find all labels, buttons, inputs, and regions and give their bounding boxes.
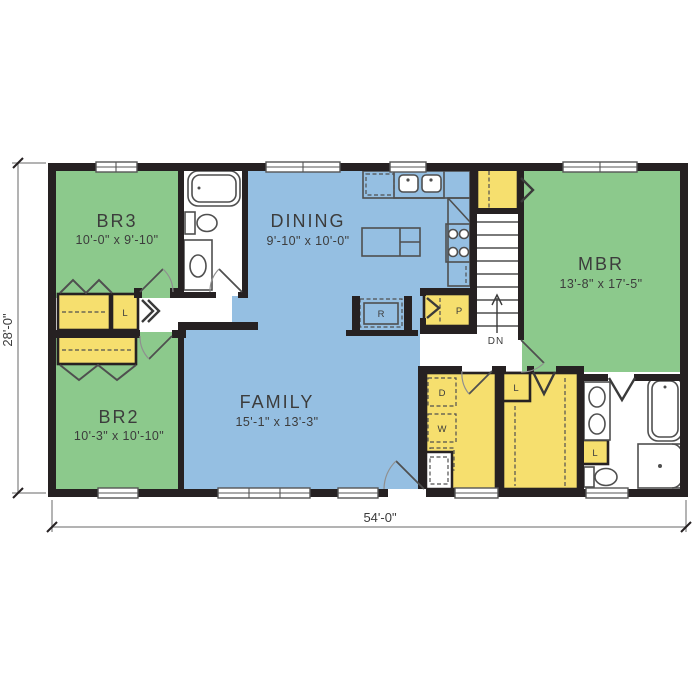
room-dims-br3: 10'-0" x 9'-10" [76, 233, 159, 247]
marker-bath-linen: L [592, 448, 597, 459]
hall-passage-area [232, 296, 248, 322]
pantry-closet [424, 294, 470, 326]
window [338, 488, 378, 498]
room-dims-family: 15'-1" x 13'-3" [236, 415, 319, 429]
room-label-mbr: MBR [578, 254, 624, 274]
window [390, 162, 426, 172]
burner [449, 230, 458, 239]
room-dims-mbr: 13'-8" x 17'-5" [560, 277, 643, 291]
marker-dryer: D [439, 388, 446, 399]
marker-hall-linen: L [122, 308, 127, 319]
room-label-br3: BR3 [96, 211, 137, 231]
marker-refrigerator: R [378, 309, 385, 320]
window [96, 162, 137, 172]
floor-plan-page: 54'-0" 28'-0" BR3 10'-0" x 9'-10" DINING… [0, 0, 700, 700]
room-dims-dining: 9'-10" x 10'-0" [267, 234, 350, 248]
room-label-br2: BR2 [98, 407, 139, 427]
vanity-sink [589, 387, 605, 407]
tub-drain [664, 386, 667, 389]
burner [460, 248, 469, 257]
window [218, 488, 310, 498]
window [563, 162, 637, 172]
kitchen-sink-bowl [422, 175, 441, 192]
toilet-tank [584, 467, 594, 487]
vanity-sink [190, 255, 206, 277]
room-label-dining: DINING [271, 211, 346, 231]
hall-bath-door [219, 269, 242, 292]
window [586, 488, 628, 498]
marker-stairs-down: DN [488, 336, 504, 347]
hall-bath [184, 171, 240, 290]
overall-depth-label: 28'-0" [0, 313, 15, 347]
toilet-tank [185, 212, 195, 234]
window [98, 488, 138, 498]
shower-drain [658, 464, 662, 468]
toilet [595, 469, 617, 486]
burner [449, 248, 458, 257]
front-door-opening [388, 489, 426, 498]
master-bath-door [609, 378, 635, 400]
toilet [197, 215, 217, 232]
floor-plan: 54'-0" 28'-0" BR3 10'-0" x 9'-10" DINING… [0, 0, 700, 700]
overall-width-label: 54'-0" [363, 510, 397, 525]
mbr-top-closet [477, 167, 518, 212]
vanity-sink [589, 414, 605, 434]
window [455, 488, 498, 498]
kitchen-sink-bowl [399, 175, 418, 192]
burner [460, 230, 469, 239]
marker-walkin-linen: L [513, 383, 518, 394]
master-bath [584, 377, 682, 488]
room-label-family: FAMILY [240, 392, 315, 412]
room-dims-br2: 10'-3" x 10'-10" [74, 429, 164, 443]
faucet [406, 178, 409, 181]
tub-drain [198, 187, 201, 190]
exterior-wall-right [680, 163, 688, 497]
marker-washer: W [438, 424, 447, 435]
faucet [429, 178, 432, 181]
marker-pantry: P [456, 306, 462, 317]
stairs [477, 222, 518, 333]
window [266, 162, 340, 172]
